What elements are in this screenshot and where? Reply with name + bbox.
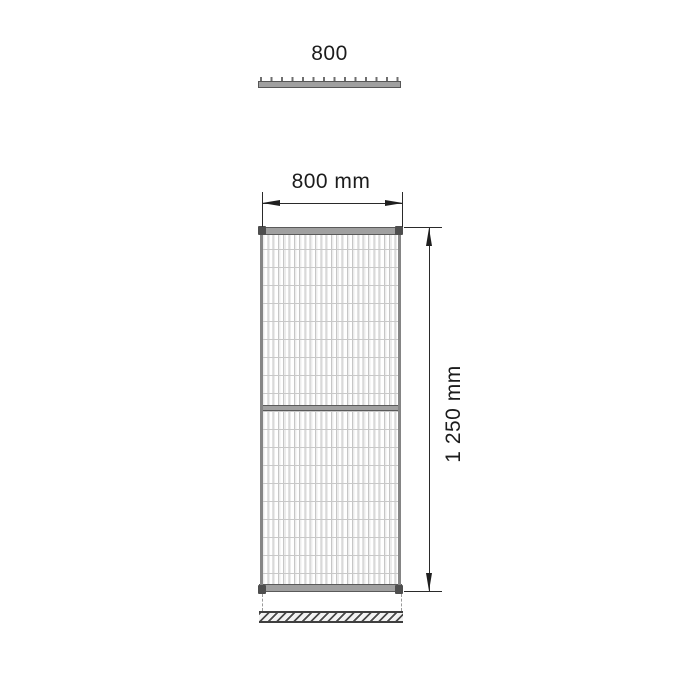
panel-bottom-rail	[259, 584, 402, 592]
height-dimension-label: 1 250 mm	[442, 354, 464, 474]
top-view-panel-bar	[258, 81, 401, 88]
panel-middle-rail	[260, 405, 401, 411]
top-view-width-label: 800	[258, 42, 401, 66]
corner-cap-top-left	[258, 226, 266, 235]
panel-left-frame	[260, 229, 263, 590]
width-arrowhead-right	[385, 200, 403, 206]
ground-projection-dash-left	[262, 594, 263, 611]
height-extension-line-bottom	[404, 591, 442, 592]
ground-projection-dash-right	[401, 594, 402, 611]
technical-drawing-canvas: 800 800 mm 1 250 mm	[0, 0, 700, 700]
height-arrowhead-bottom	[426, 573, 432, 591]
panel-top-rail	[259, 227, 402, 235]
width-dimension-line	[262, 203, 403, 204]
panel-right-frame	[398, 229, 401, 590]
width-arrowhead-left	[262, 200, 280, 206]
width-extension-line-right	[402, 192, 403, 227]
height-dimension-line	[429, 228, 430, 591]
height-extension-line-top	[404, 227, 442, 228]
front-view-panel	[259, 227, 402, 592]
width-extension-line-left	[262, 192, 263, 227]
height-arrowhead-top	[426, 228, 432, 246]
corner-cap-bottom-right	[395, 585, 403, 594]
ground-hatch-strip	[259, 611, 403, 623]
width-dimension-label: 800 mm	[256, 170, 406, 194]
corner-cap-bottom-left	[258, 585, 266, 594]
corner-cap-top-right	[395, 226, 403, 235]
